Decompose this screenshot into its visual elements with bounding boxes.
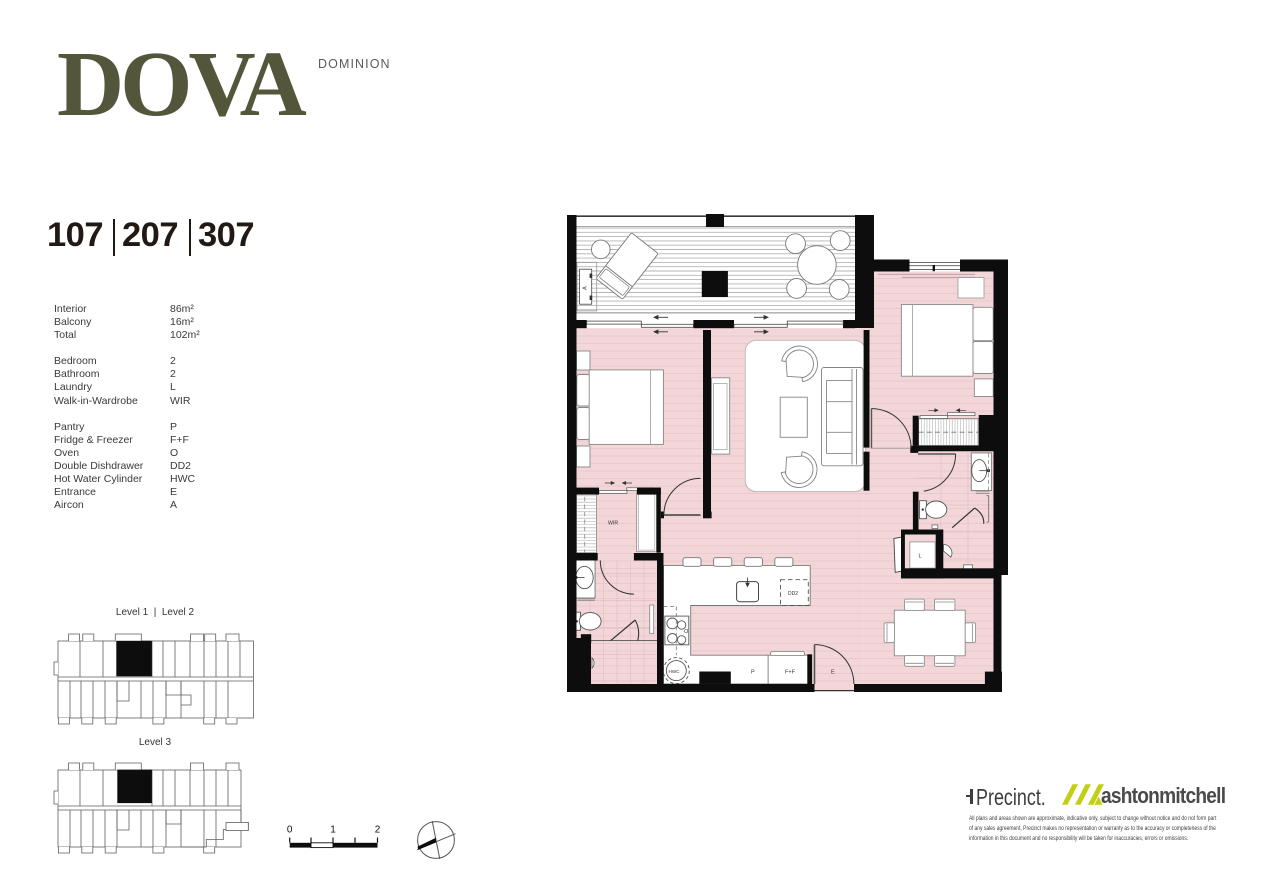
svg-text:A: A bbox=[583, 286, 589, 290]
svg-text:E: E bbox=[831, 670, 835, 676]
svg-text:L: L bbox=[919, 554, 922, 560]
svg-text:0: 0 bbox=[287, 825, 293, 836]
svg-text:F+F: F+F bbox=[785, 670, 796, 676]
svg-text:P: P bbox=[751, 670, 755, 676]
svg-text:WIR: WIR bbox=[608, 521, 618, 527]
svg-text:HWC: HWC bbox=[669, 669, 681, 674]
svg-text:DD2: DD2 bbox=[788, 591, 798, 597]
svg-text:O: O bbox=[684, 629, 689, 635]
svg-text:2: 2 bbox=[375, 825, 381, 836]
svg-text:1: 1 bbox=[330, 825, 336, 836]
